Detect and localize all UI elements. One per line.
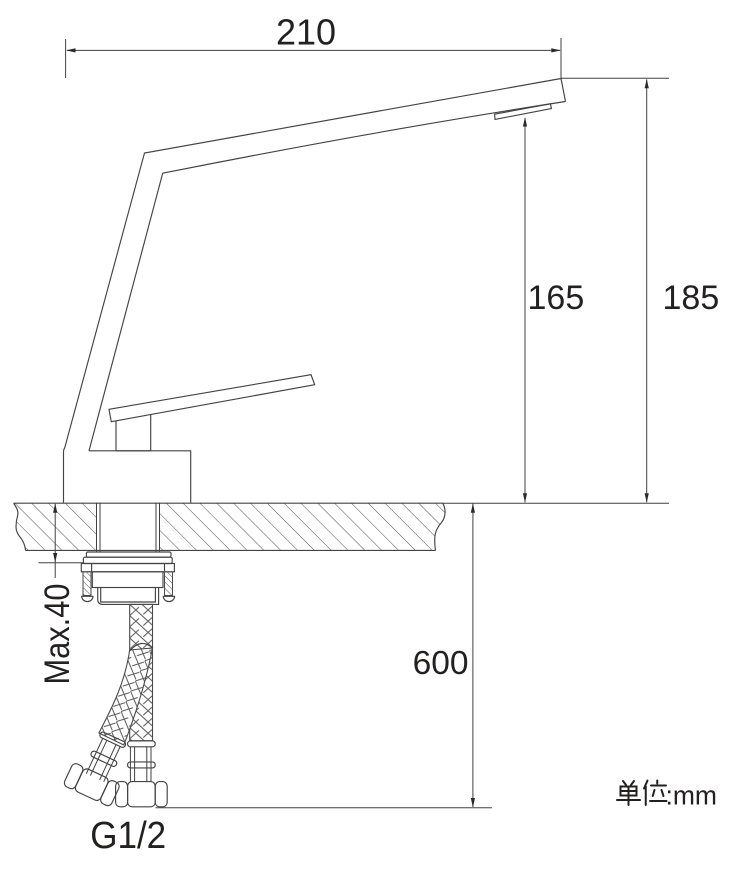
svg-text::mm: :mm xyxy=(666,781,718,811)
svg-text:G1/2: G1/2 xyxy=(90,815,166,857)
svg-text:210: 210 xyxy=(276,12,336,53)
svg-text:600: 600 xyxy=(413,645,469,682)
svg-text:165: 165 xyxy=(528,279,585,317)
svg-text:Max.40: Max.40 xyxy=(38,584,77,685)
svg-text:185: 185 xyxy=(663,279,720,317)
